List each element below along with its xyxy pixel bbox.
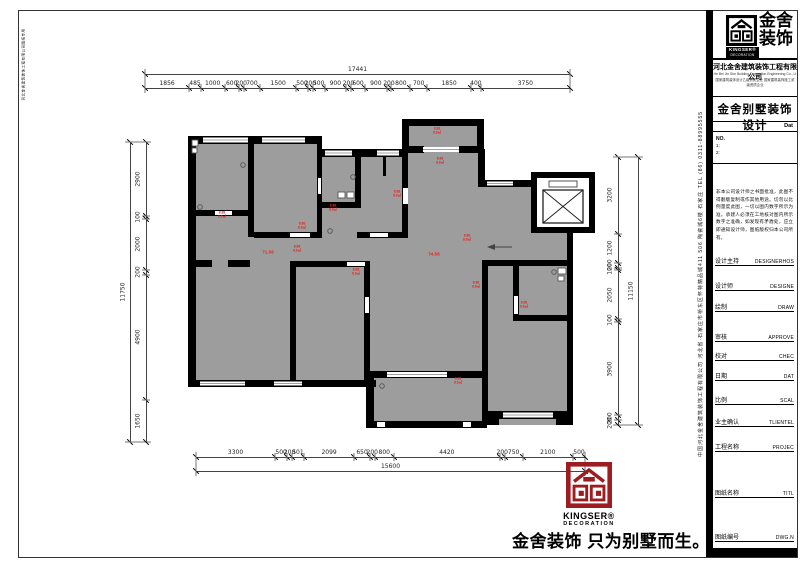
dim-stub-v (365, 84, 366, 92)
dim-stub-v (480, 84, 481, 92)
dim-stub-v (522, 453, 523, 461)
kingser-emblem-icon (726, 15, 757, 46)
dim-lab: 700 (413, 80, 424, 87)
room-area-label: 8.888.8㎡ (393, 190, 401, 197)
row-value: APPROVE (768, 335, 794, 341)
room-area-label: 8.888.8㎡ (298, 222, 306, 229)
divider (713, 163, 797, 164)
row-value: DAT (784, 374, 794, 380)
dim-stub-h (614, 157, 622, 158)
row-value: DESIGNERHOS (755, 259, 794, 265)
dim-lab-v: 11150 (628, 281, 635, 300)
dim-lab: 900 (330, 80, 341, 87)
dim-lab: 3750 (518, 80, 533, 87)
dim-stub-v (243, 84, 244, 92)
dim-stub-v (224, 84, 225, 92)
row-label: 日期 (715, 371, 727, 380)
dim-lab: 1850 (441, 80, 456, 87)
company-name-en: He Bei Jin She Building Decoration Engin… (713, 72, 797, 76)
dim-stub-h (142, 274, 150, 275)
dim-lab: 750 (508, 449, 519, 456)
row-value: DWG.N (776, 535, 794, 541)
dim-stub-h (614, 233, 622, 234)
footer-kingser-text: KINGSER® (556, 511, 622, 521)
dim-lab: 1500 (271, 80, 286, 87)
dim-lab-v: 11750 (120, 282, 127, 301)
company-credentials: 国家建筑装饰设计乙级资质企业 国家建筑装饰施工贰级资质企业 (715, 78, 795, 87)
dim-lab: 1856 (159, 80, 174, 87)
row-value: PROJEC (773, 445, 794, 451)
dim-lab-v: 1650 (135, 413, 142, 428)
dim-lab-v: 1200 (607, 241, 614, 256)
dim-lab: 4420 (439, 449, 454, 456)
dim-line-v (130, 142, 131, 442)
dim-line-v (638, 157, 639, 425)
divider (713, 96, 797, 97)
title-block-divider (706, 10, 713, 557)
kingser-emblem-red-icon (566, 462, 612, 508)
dim-lab: 1000 (205, 80, 220, 87)
dim-stub-v (145, 84, 146, 92)
room-area-label: 8.888.8㎡ (463, 234, 471, 241)
room-area-label: 74.56 (428, 252, 440, 257)
dim-stub-v (200, 84, 201, 92)
dim-lab-v: 4900 (135, 330, 142, 345)
dim-lab: 800 (379, 449, 390, 456)
dim-lab-v: 2900 (135, 171, 142, 186)
room-area-label: 8.888.8㎡ (293, 245, 301, 252)
dim-lab: 17441 (348, 66, 367, 73)
dim-line-v (146, 142, 147, 442)
dim-lab: 900 (370, 80, 381, 87)
room-area-label: 8.888.8㎡ (472, 281, 480, 288)
dim-stub-v (391, 84, 392, 92)
date-label: Dat (715, 123, 793, 129)
row-label: 比例 (715, 395, 727, 404)
row-label: 审核 (715, 332, 727, 341)
dim-line-v (618, 157, 619, 425)
title-block-row: 设计主持DESIGNERHOS (715, 252, 794, 266)
title-block-row: 校对CHEC (715, 347, 794, 361)
divider (713, 58, 797, 60)
dim-stub-v (504, 453, 505, 461)
dim-lab-v: 3900 (607, 361, 614, 376)
row-value: SCAL (780, 398, 794, 404)
dim-lab-v: 200 (135, 266, 142, 277)
dim-lab-v: 2050 (607, 287, 614, 302)
room-area-label: 8.888.8㎡ (329, 204, 337, 211)
row-label: 图纸名称 (715, 488, 739, 497)
title-block-row: 审核APPROVE (715, 328, 794, 342)
row-label: 业主确认 (715, 417, 739, 426)
dim-stub-v (324, 84, 325, 92)
dim-lab-v: 200 (607, 417, 614, 428)
dim-line-h (145, 74, 570, 75)
row-label: 工程名称 (715, 442, 739, 451)
room-area-label: 8.888.8㎡ (454, 377, 462, 384)
dim-lab-v: 100 (607, 263, 614, 274)
footer-slogan: 金舍装饰 只为别墅而生。 (512, 527, 732, 552)
title-block-row: 日期DAT (715, 367, 794, 381)
room-area-label: 8.888.8㎡ (218, 211, 226, 218)
dim-stub-v (393, 453, 394, 461)
title-block-row: 比例SCAL (715, 391, 794, 405)
dim-lab-v: 2000 (135, 236, 142, 251)
dim-stub-v (427, 84, 428, 92)
brand-name-line1: 金舍 (759, 12, 793, 30)
dim-lab: 2099 (321, 449, 336, 456)
dim-lab: 800 (395, 80, 406, 87)
title-block-row: 设计师DESIGNE (715, 277, 794, 291)
row-label: 校对 (715, 351, 727, 360)
dim-stub-v (260, 84, 261, 92)
disclaimer-text: 非本公司设计师之书面批准，此图不得翻版复制或作其他用途。切勿以比例量度此图，一切… (716, 188, 793, 241)
row-label: 绘制 (715, 302, 727, 311)
room-area-label: 8.888.8㎡ (520, 301, 528, 308)
dim-stub-h (142, 269, 150, 270)
row-value: TITL (783, 491, 794, 497)
brand-name-line2: 装饰 (759, 30, 793, 48)
no-line-2: 2: (716, 150, 720, 155)
title-block-row: 图纸名称TITL (715, 484, 794, 498)
row-label: 设计主持 (715, 256, 739, 265)
drawing-sheet: 河北金舍建筑装饰工程有限公司图纸专用 (0, 0, 800, 567)
room-area-label: 71.56 (262, 250, 274, 255)
dim-stub-h (142, 218, 150, 219)
dim-line-h (196, 471, 585, 472)
dim-stub-v (303, 453, 304, 461)
dim-lab: 700 (246, 80, 257, 87)
no-label: NO. (716, 136, 725, 142)
dim-stub-v (350, 84, 351, 92)
company-address-vertical: 中国河北金舍建筑装饰工程有限公司 河北省·石家庄市桥东区怀特精品城411 506… (697, 14, 705, 554)
elevator-shaft (531, 172, 595, 233)
dim-lab-v: 3200 (607, 188, 614, 203)
room-area-label: 8.888.8㎡ (436, 157, 444, 164)
row-value: TLIENTEL (769, 420, 794, 426)
dim-line-h (145, 88, 570, 89)
dim-lab: 15600 (381, 463, 400, 470)
row-value: DRAW (778, 305, 794, 311)
dim-stub-v (354, 453, 355, 461)
dim-line-h (196, 457, 585, 458)
dim-stub-h (142, 399, 150, 400)
dim-stub-h (614, 262, 622, 263)
row-value: DESIGNE (770, 284, 794, 290)
dim-stub-v (196, 453, 197, 461)
row-label: 设计师 (715, 281, 733, 290)
dim-stub-h (142, 142, 150, 143)
title-block-row: 工程名称PROJEC (715, 438, 794, 452)
title-block-row: 绘制DRAW (715, 298, 794, 312)
dim-lab: 2100 (540, 449, 555, 456)
dim-lab-v: 100 (607, 315, 614, 326)
dim-stub-h (614, 321, 622, 322)
title-block-row: 业主确认TLIENTEL (715, 413, 794, 427)
dim-stub-v (374, 453, 375, 461)
room-area-label: 8.888.8㎡ (433, 127, 441, 134)
divider (713, 131, 797, 132)
row-value: CHEC (779, 354, 794, 360)
dim-stub-h (614, 269, 622, 270)
room-area-label: 8.888.8㎡ (352, 268, 360, 275)
divider (713, 121, 797, 122)
no-line-1: 1: (716, 143, 720, 148)
dim-stub-v (410, 84, 411, 92)
dim-lab-v: 100 (135, 212, 142, 223)
dim-lab: 3300 (228, 449, 243, 456)
